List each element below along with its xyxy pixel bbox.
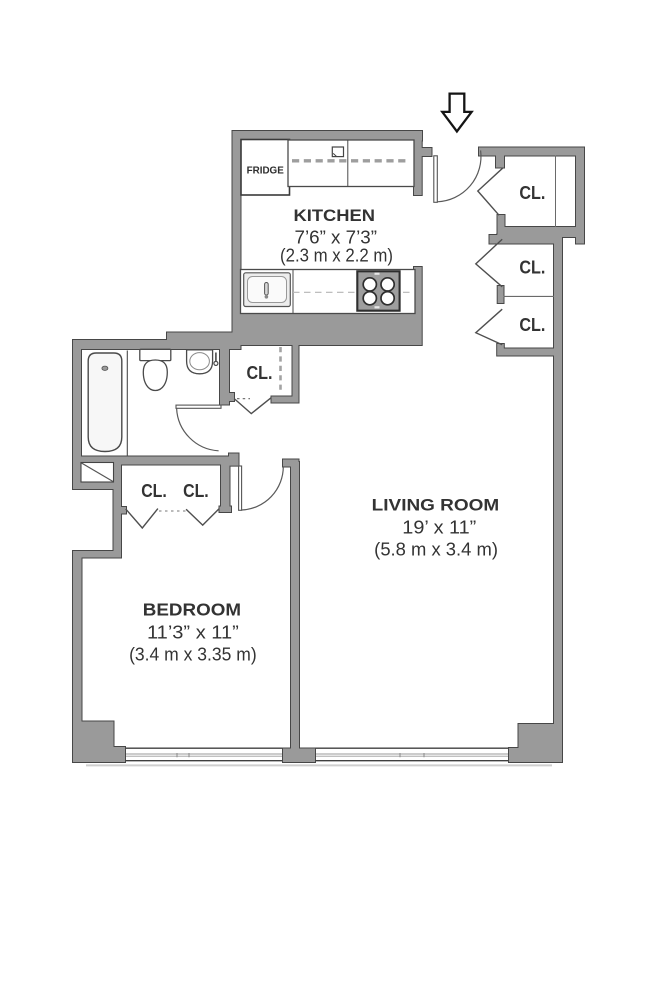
svg-text:7’6” x 7’3”: 7’6” x 7’3” (295, 227, 378, 247)
svg-text:11’3” x 11”: 11’3” x 11” (147, 622, 239, 642)
svg-text:BEDROOM: BEDROOM (143, 600, 241, 620)
svg-text:CL.: CL. (519, 182, 545, 203)
svg-text:FRIDGE: FRIDGE (247, 165, 284, 176)
svg-text:CL.: CL. (519, 257, 545, 278)
svg-text:LIVING ROOM: LIVING ROOM (372, 497, 500, 515)
svg-text:KITCHEN: KITCHEN (294, 207, 376, 225)
svg-text:(5.8 m x 3.4 m): (5.8 m x 3.4 m) (374, 539, 498, 559)
svg-text:CL.: CL. (247, 362, 273, 383)
svg-text:CL.: CL. (141, 480, 167, 501)
svg-text:19’ x 11”: 19’ x 11” (402, 517, 476, 537)
svg-text:CL.: CL. (519, 314, 545, 335)
svg-text:(2.3 m x 2.2 m): (2.3 m x 2.2 m) (280, 246, 393, 266)
svg-text:CL.: CL. (183, 480, 209, 501)
svg-text:(3.4 m x 3.35 m): (3.4 m x 3.35 m) (129, 644, 257, 664)
